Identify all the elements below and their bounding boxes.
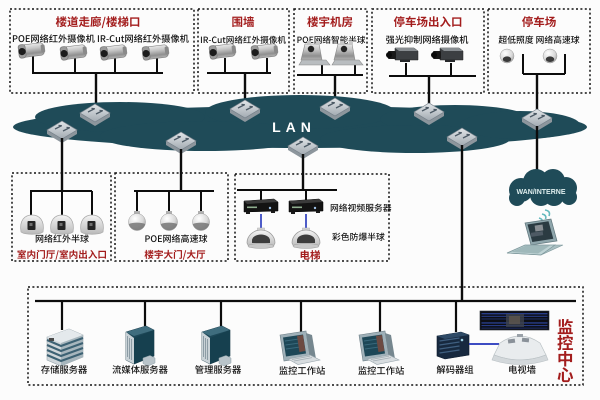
svg-text:WAN/INTERNE: WAN/INTERNE: [517, 189, 566, 196]
svg-text:LAN: LAN: [272, 119, 316, 135]
